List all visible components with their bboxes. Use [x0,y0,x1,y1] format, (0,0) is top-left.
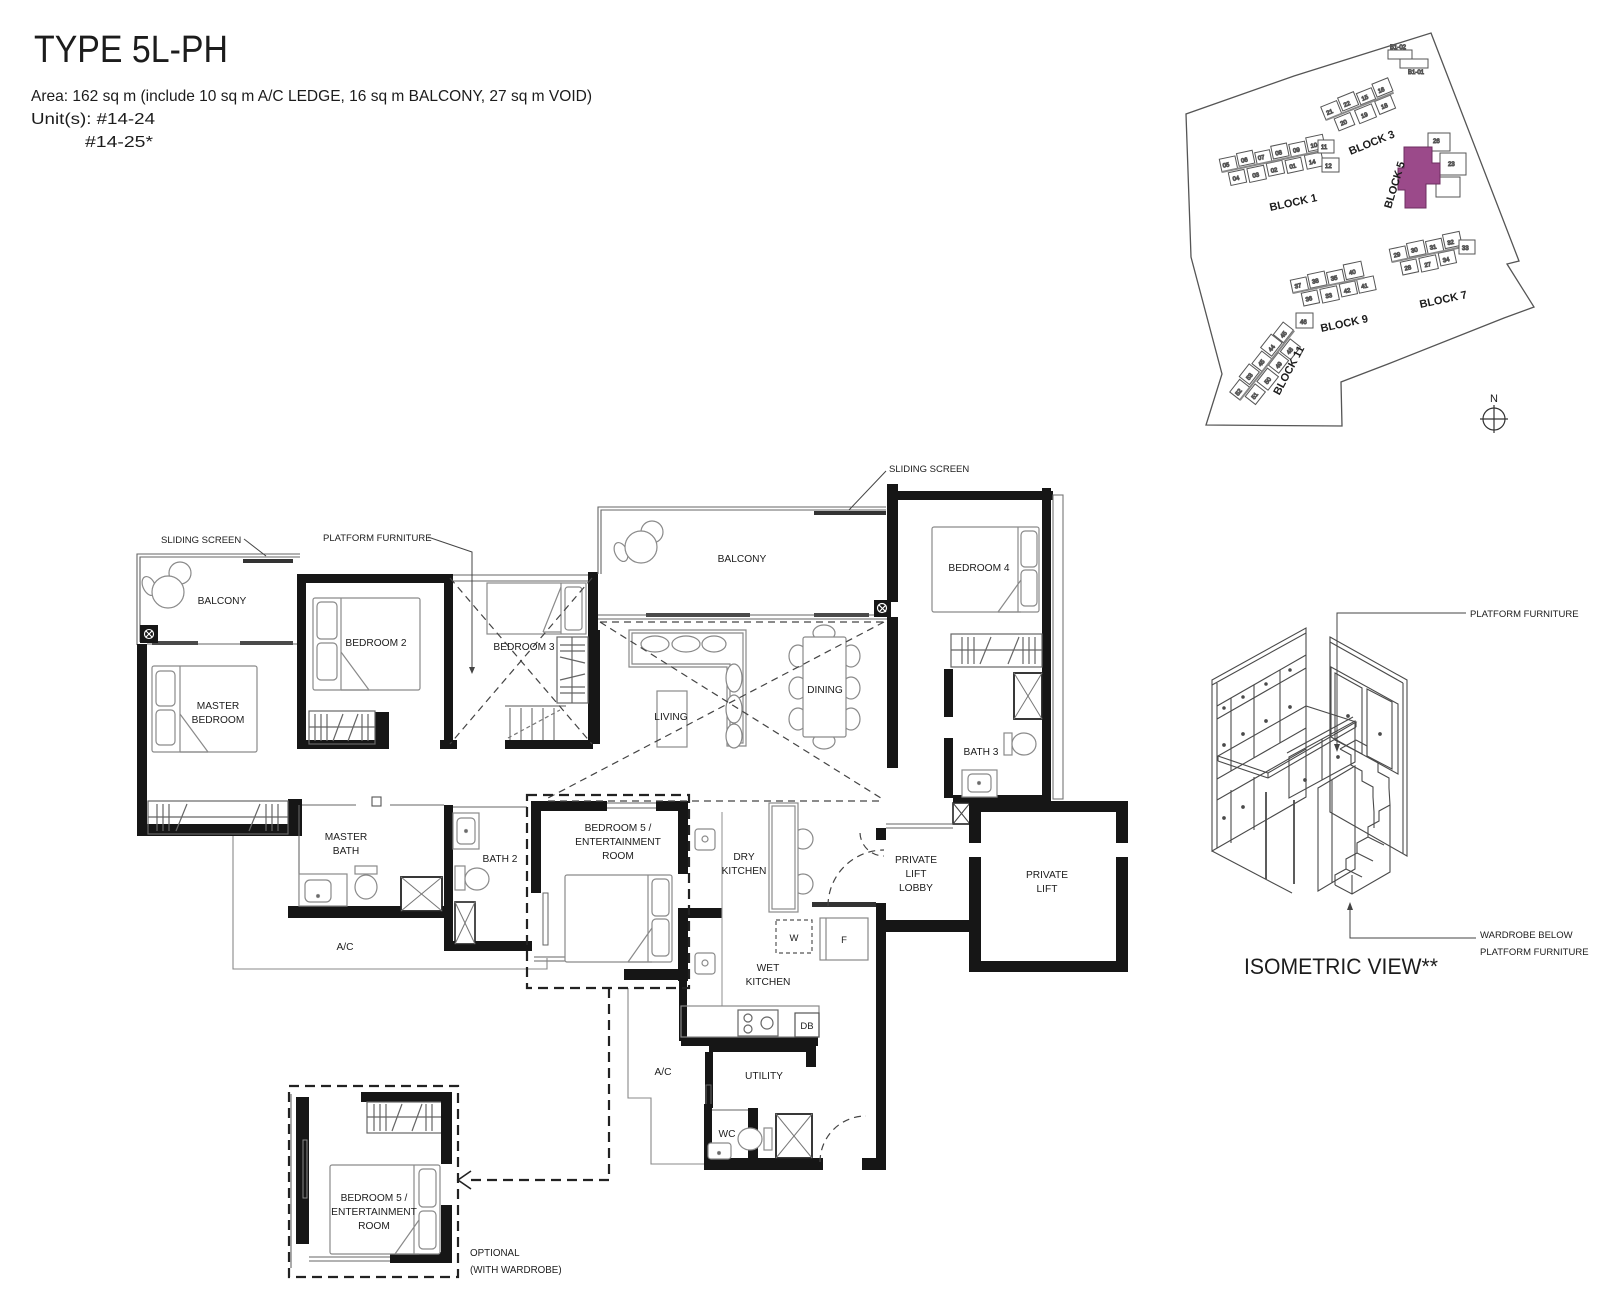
svg-text:MASTER: MASTER [197,701,239,712]
svg-text:LIFT: LIFT [906,869,927,880]
svg-text:B1-02: B1-02 [1390,45,1407,51]
svg-text:WET: WET [757,963,780,974]
svg-text:Unit(s): #14-24: Unit(s): #14-24 [31,111,155,128]
svg-text:PLATFORM FURNITURE: PLATFORM FURNITURE [323,533,432,544]
svg-text:26: 26 [1433,139,1440,145]
svg-text:WARDROBE BELOW: WARDROBE BELOW [1480,930,1573,941]
svg-text:BATH 3: BATH 3 [964,747,999,758]
svg-text:BALCONY: BALCONY [198,596,247,607]
svg-text:#14-25*: #14-25* [85,134,153,151]
svg-text:LIVING: LIVING [654,712,687,723]
svg-text:PRIVATE: PRIVATE [1026,870,1068,881]
svg-text:LIFT: LIFT [1037,884,1058,895]
svg-text:N: N [1490,393,1498,405]
svg-text:F: F [841,935,847,946]
svg-text:ROOM: ROOM [602,851,634,862]
svg-text:PLATFORM FURNITURE: PLATFORM FURNITURE [1470,609,1579,620]
svg-text:SLIDING SCREEN: SLIDING SCREEN [161,535,241,546]
svg-text:ENTERTAINMENT: ENTERTAINMENT [575,837,661,848]
svg-text:BEDROOM 3: BEDROOM 3 [493,642,554,653]
svg-text:A/C: A/C [655,1067,672,1078]
svg-text:UTILITY: UTILITY [745,1071,783,1082]
svg-text:11: 11 [1321,145,1328,151]
svg-text:BATH 2: BATH 2 [483,854,518,865]
svg-text:W: W [790,933,799,944]
svg-text:BEDROOM: BEDROOM [192,715,245,726]
svg-text:BEDROOM 4: BEDROOM 4 [948,563,1009,574]
svg-text:BEDROOM 5 /: BEDROOM 5 / [585,823,652,834]
svg-text:23: 23 [1448,162,1455,168]
svg-text:SLIDING SCREEN: SLIDING SCREEN [889,464,969,475]
svg-text:ROOM: ROOM [358,1221,390,1232]
svg-text:33: 33 [1462,246,1469,252]
svg-text:TYPE 5L-PH: TYPE 5L-PH [34,29,228,71]
svg-text:PRIVATE: PRIVATE [895,855,937,866]
svg-text:BEDROOM 5 /: BEDROOM 5 / [341,1193,408,1204]
svg-text:BALCONY: BALCONY [718,554,767,565]
svg-text:46: 46 [1300,320,1307,326]
svg-text:(WITH WARDROBE): (WITH WARDROBE) [470,1265,562,1276]
svg-text:ENTERTAINMENT: ENTERTAINMENT [331,1207,417,1218]
svg-text:DRY: DRY [733,852,755,863]
svg-text:MASTER: MASTER [325,832,367,843]
svg-text:12: 12 [1325,164,1332,170]
svg-text:DINING: DINING [807,685,843,696]
svg-text:KITCHEN: KITCHEN [722,866,767,877]
svg-text:ISOMETRIC VIEW**: ISOMETRIC VIEW** [1244,954,1438,979]
svg-text:LOBBY: LOBBY [899,883,933,894]
svg-text:WC: WC [719,1129,736,1140]
svg-text:Area: 162 sq m (include 10 sq: Area: 162 sq m (include 10 sq m A/C LEDG… [31,88,592,105]
svg-text:KITCHEN: KITCHEN [746,977,791,988]
svg-text:A/C: A/C [337,942,354,953]
svg-text:OPTIONAL: OPTIONAL [470,1248,520,1259]
svg-text:BEDROOM 2: BEDROOM 2 [345,638,406,649]
svg-text:PLATFORM FURNITURE: PLATFORM FURNITURE [1480,947,1589,958]
svg-text:DB: DB [800,1021,813,1032]
svg-text:B1-01: B1-01 [1408,70,1425,76]
svg-text:BATH: BATH [333,846,359,857]
